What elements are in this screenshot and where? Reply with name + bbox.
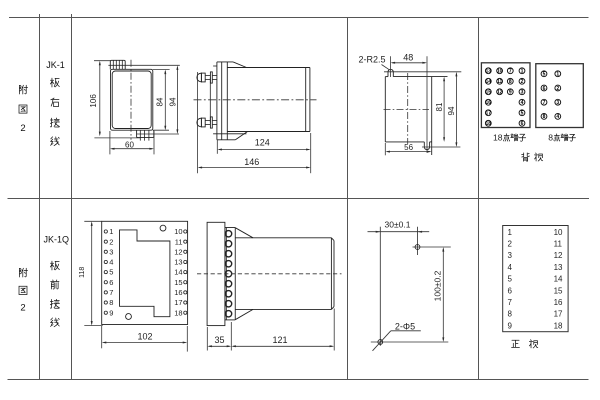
svg-text:7: 7	[508, 298, 513, 307]
svg-text:6: 6	[521, 121, 524, 127]
svg-text:10: 10	[554, 228, 563, 237]
svg-text:2: 2	[508, 239, 513, 248]
svg-text:8: 8	[508, 310, 513, 319]
svg-text:16: 16	[486, 100, 492, 106]
svg-text:15: 15	[554, 286, 563, 295]
svg-text:13: 13	[486, 69, 492, 75]
svg-text:9: 9	[509, 90, 512, 96]
svg-text:10: 10	[174, 227, 182, 236]
svg-text:18: 18	[493, 133, 503, 143]
svg-text:2: 2	[109, 237, 113, 246]
svg-text:3: 3	[109, 247, 113, 256]
svg-text:17: 17	[174, 298, 182, 307]
svg-text:5: 5	[508, 275, 513, 284]
svg-text:4: 4	[109, 258, 113, 267]
svg-text:146: 146	[244, 157, 259, 167]
svg-text:84: 84	[156, 97, 165, 106]
svg-text:7: 7	[543, 100, 546, 106]
svg-text:12: 12	[174, 247, 182, 256]
svg-text:4: 4	[508, 263, 513, 272]
svg-text:14: 14	[554, 275, 563, 284]
svg-text:10: 10	[497, 69, 503, 75]
svg-text:9: 9	[109, 308, 113, 317]
svg-text:5: 5	[521, 111, 524, 117]
svg-text:124: 124	[255, 138, 270, 148]
svg-text:8: 8	[509, 79, 512, 85]
svg-text:16: 16	[554, 298, 563, 307]
svg-text:8: 8	[548, 133, 553, 143]
svg-text:4: 4	[556, 114, 559, 120]
svg-text:4: 4	[521, 100, 524, 106]
svg-text:2-Φ5: 2-Φ5	[395, 321, 415, 331]
svg-text:8: 8	[109, 298, 113, 307]
svg-text:1: 1	[556, 72, 559, 78]
svg-text:1: 1	[109, 227, 113, 236]
svg-text:60: 60	[125, 140, 134, 149]
svg-text:1: 1	[521, 69, 524, 75]
svg-text:7: 7	[109, 288, 113, 297]
svg-text:14: 14	[174, 268, 182, 277]
svg-text:13: 13	[174, 258, 182, 267]
svg-text:3: 3	[508, 251, 513, 260]
svg-text:12: 12	[497, 90, 503, 96]
svg-text:94: 94	[168, 97, 177, 106]
svg-text:18: 18	[486, 121, 492, 127]
svg-text:11: 11	[497, 79, 503, 85]
svg-text:121: 121	[272, 335, 287, 345]
svg-text:18: 18	[554, 321, 563, 330]
svg-text:118: 118	[79, 267, 86, 278]
svg-text:11: 11	[554, 239, 563, 248]
svg-text:3: 3	[556, 100, 559, 106]
svg-text:102: 102	[137, 331, 152, 341]
svg-text:2: 2	[20, 302, 25, 313]
svg-text:56: 56	[404, 143, 413, 152]
svg-text:14: 14	[486, 79, 492, 85]
svg-text:15: 15	[174, 278, 182, 287]
svg-text:100±0.2: 100±0.2	[433, 270, 443, 301]
svg-text:9: 9	[508, 321, 513, 330]
svg-text:JK-1: JK-1	[46, 60, 65, 70]
svg-text:94: 94	[447, 106, 456, 115]
svg-text:JK-1Q: JK-1Q	[44, 234, 70, 244]
svg-text:6: 6	[508, 286, 513, 295]
svg-text:30±0.1: 30±0.1	[385, 220, 411, 230]
svg-text:18: 18	[174, 308, 182, 317]
svg-text:81: 81	[435, 102, 444, 111]
svg-text:13: 13	[554, 263, 563, 272]
svg-text:5: 5	[543, 72, 546, 78]
svg-text:6: 6	[543, 86, 546, 92]
svg-text:15: 15	[486, 90, 492, 96]
svg-text:16: 16	[174, 288, 182, 297]
svg-text:2: 2	[556, 86, 559, 92]
svg-text:12: 12	[554, 251, 563, 260]
svg-text:2: 2	[20, 123, 25, 134]
svg-text:6: 6	[109, 278, 113, 287]
svg-text:48: 48	[403, 52, 413, 62]
svg-text:106: 106	[89, 94, 98, 108]
svg-text:7: 7	[509, 69, 512, 75]
svg-text:5: 5	[109, 268, 113, 277]
svg-text:17: 17	[486, 111, 492, 117]
svg-text:1: 1	[508, 228, 513, 237]
svg-text:35: 35	[214, 335, 224, 345]
svg-text:2-R2.5: 2-R2.5	[358, 55, 385, 65]
svg-text:11: 11	[175, 237, 183, 246]
svg-text:3: 3	[521, 90, 524, 96]
svg-text:8: 8	[543, 114, 546, 120]
svg-text:2: 2	[521, 79, 524, 85]
svg-text:17: 17	[554, 310, 563, 319]
